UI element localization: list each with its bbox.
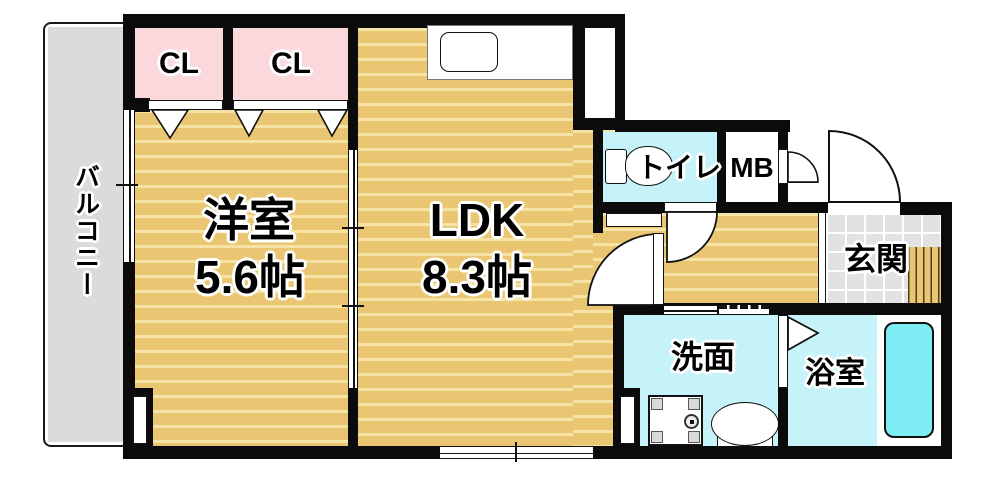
entrance-label: 玄関 [844, 243, 908, 275]
western-room-label: 洋室 [203, 197, 295, 243]
wall [778, 388, 788, 446]
front-door-swing [829, 131, 900, 202]
washer-pan-corner [651, 431, 663, 443]
washer-drain-dot [690, 420, 694, 424]
wall [573, 14, 585, 122]
wall [348, 25, 358, 150]
wall-dashed-opening [719, 305, 769, 314]
ldk-label: LDK [430, 197, 525, 243]
bathroom-door-opening [778, 315, 788, 388]
toilet-door-leaf [664, 202, 717, 212]
meter-box-door-leaf [778, 149, 788, 184]
wall [123, 262, 135, 388]
meter-box-door-swing [788, 152, 818, 182]
wall [941, 202, 952, 459]
partition-sliding-door [348, 150, 358, 388]
meter-box-label: MB [730, 154, 774, 182]
wall [223, 25, 233, 110]
washing-machine-icon [648, 395, 703, 446]
wall [593, 128, 603, 233]
kitchen-sink-icon [440, 32, 498, 72]
window-tick [116, 184, 138, 186]
door-sash-line [353, 150, 355, 388]
washer-pan-corner [688, 431, 700, 443]
hall-wall-niche [606, 213, 662, 227]
door-tick [342, 305, 364, 307]
toilet-tank-icon [605, 149, 627, 184]
washbasin-icon [711, 402, 779, 446]
washer-pan-corner [688, 398, 700, 410]
window-tick [515, 442, 517, 462]
washer-pan-corner [651, 398, 663, 410]
washroom-wall-niche [620, 396, 635, 444]
closet-left-label: CL [159, 49, 199, 79]
front-door-opening [828, 202, 900, 213]
wall [615, 120, 790, 132]
closet-left-door [148, 100, 223, 110]
washroom-label: 洗面 [671, 341, 735, 373]
western-room-size: 5.6帖 [195, 254, 305, 300]
ldk-door-leaf [653, 233, 664, 305]
floor-plan: バルコニー CL CL 洋室 5.6帖 LDK 8.3帖 トイレ MB 玄関 洗… [0, 0, 992, 482]
washroom-sliding-door [664, 305, 717, 315]
closet-right-door [233, 100, 348, 110]
wall [788, 179, 818, 183]
ldk-size: 8.3帖 [422, 254, 532, 300]
balcony-window [123, 110, 135, 262]
closet-right-label: CL [271, 49, 311, 79]
balcony-label: バルコニー [73, 164, 98, 299]
entrance-step-wood [908, 247, 941, 303]
door-sash-line [664, 310, 717, 312]
wall [615, 14, 625, 130]
window-sash-line [129, 110, 131, 262]
entrance-step-strip [818, 213, 826, 303]
bathtub-icon [884, 322, 934, 438]
corner-window [133, 396, 147, 444]
door-tick [342, 227, 364, 229]
toilet-label: トイレ [637, 154, 721, 182]
bathroom-label: 浴室 [805, 359, 865, 389]
wall [123, 14, 135, 110]
hallway-floor [663, 213, 818, 303]
wall [348, 388, 358, 446]
